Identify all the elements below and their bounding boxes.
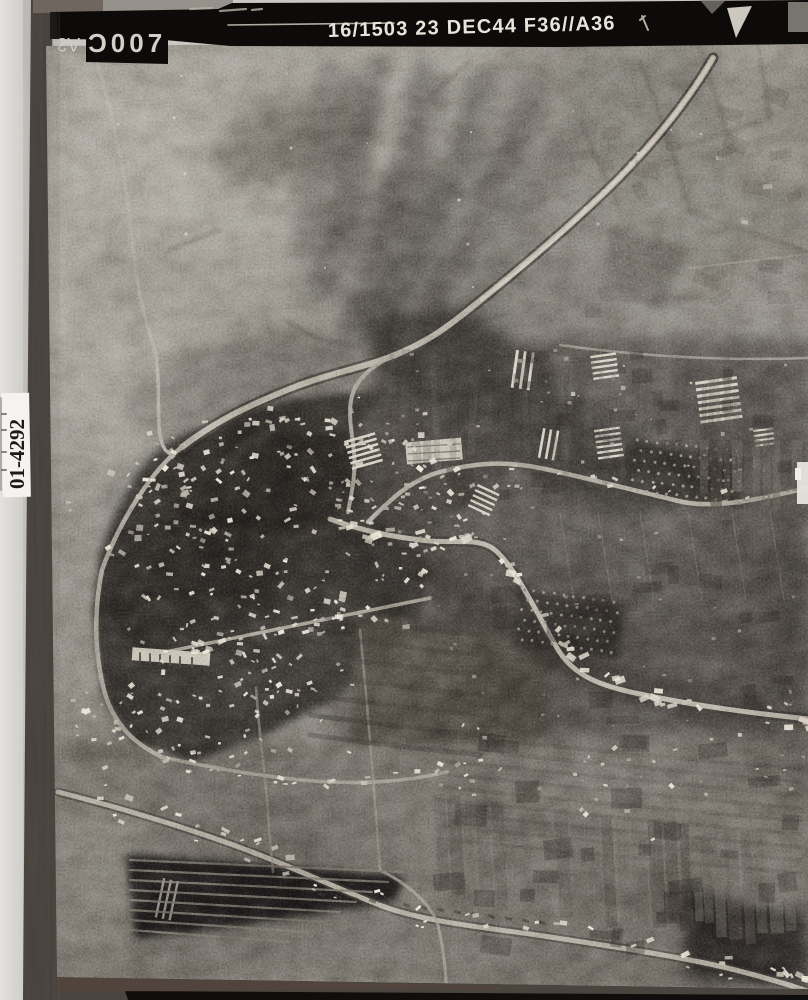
svg-text:Ɔ007: Ɔ007 [88,28,166,58]
svg-text:A3: A3 [57,33,80,54]
svg-text:01-4292: 01-4292 [5,419,29,489]
